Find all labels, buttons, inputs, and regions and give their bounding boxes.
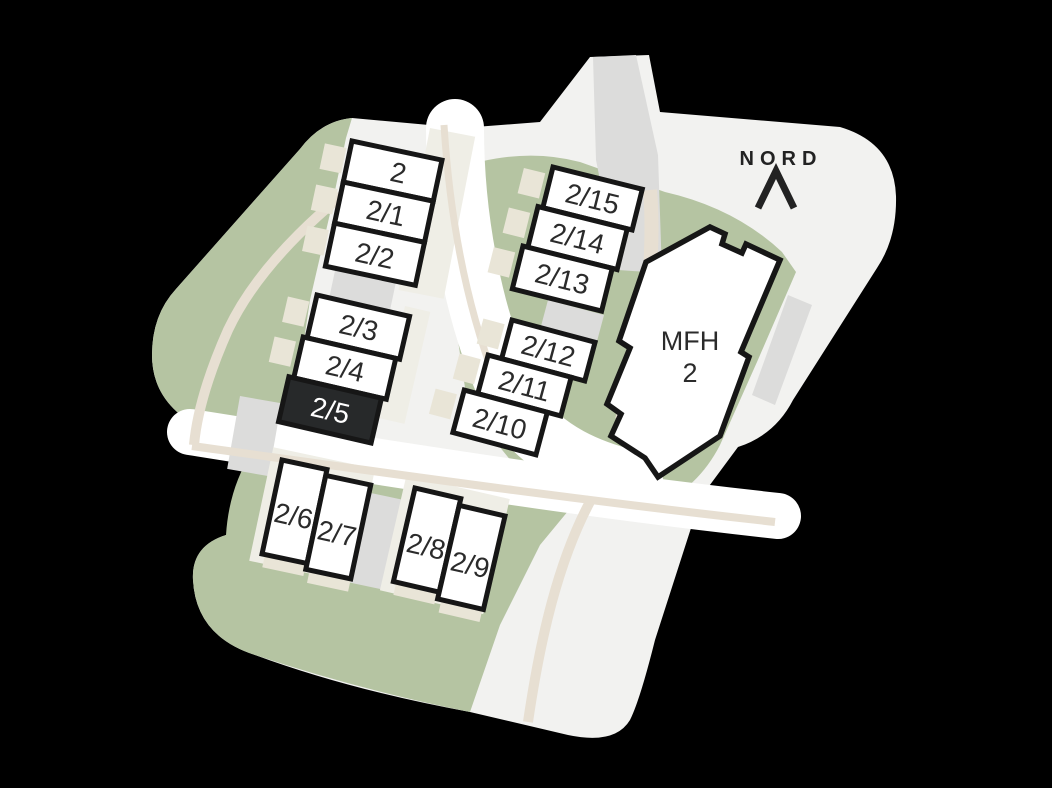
site-plan: 2 2/1 2/2 2/3 2/4 2/5 xyxy=(0,0,1052,788)
site-plan-canvas: 2 2/1 2/2 2/3 2/4 2/5 xyxy=(0,0,1052,788)
north-label: NORD xyxy=(740,148,823,170)
mfh-label-line1: MFH xyxy=(661,326,719,356)
mfh-label-line2: 2 xyxy=(682,358,697,388)
